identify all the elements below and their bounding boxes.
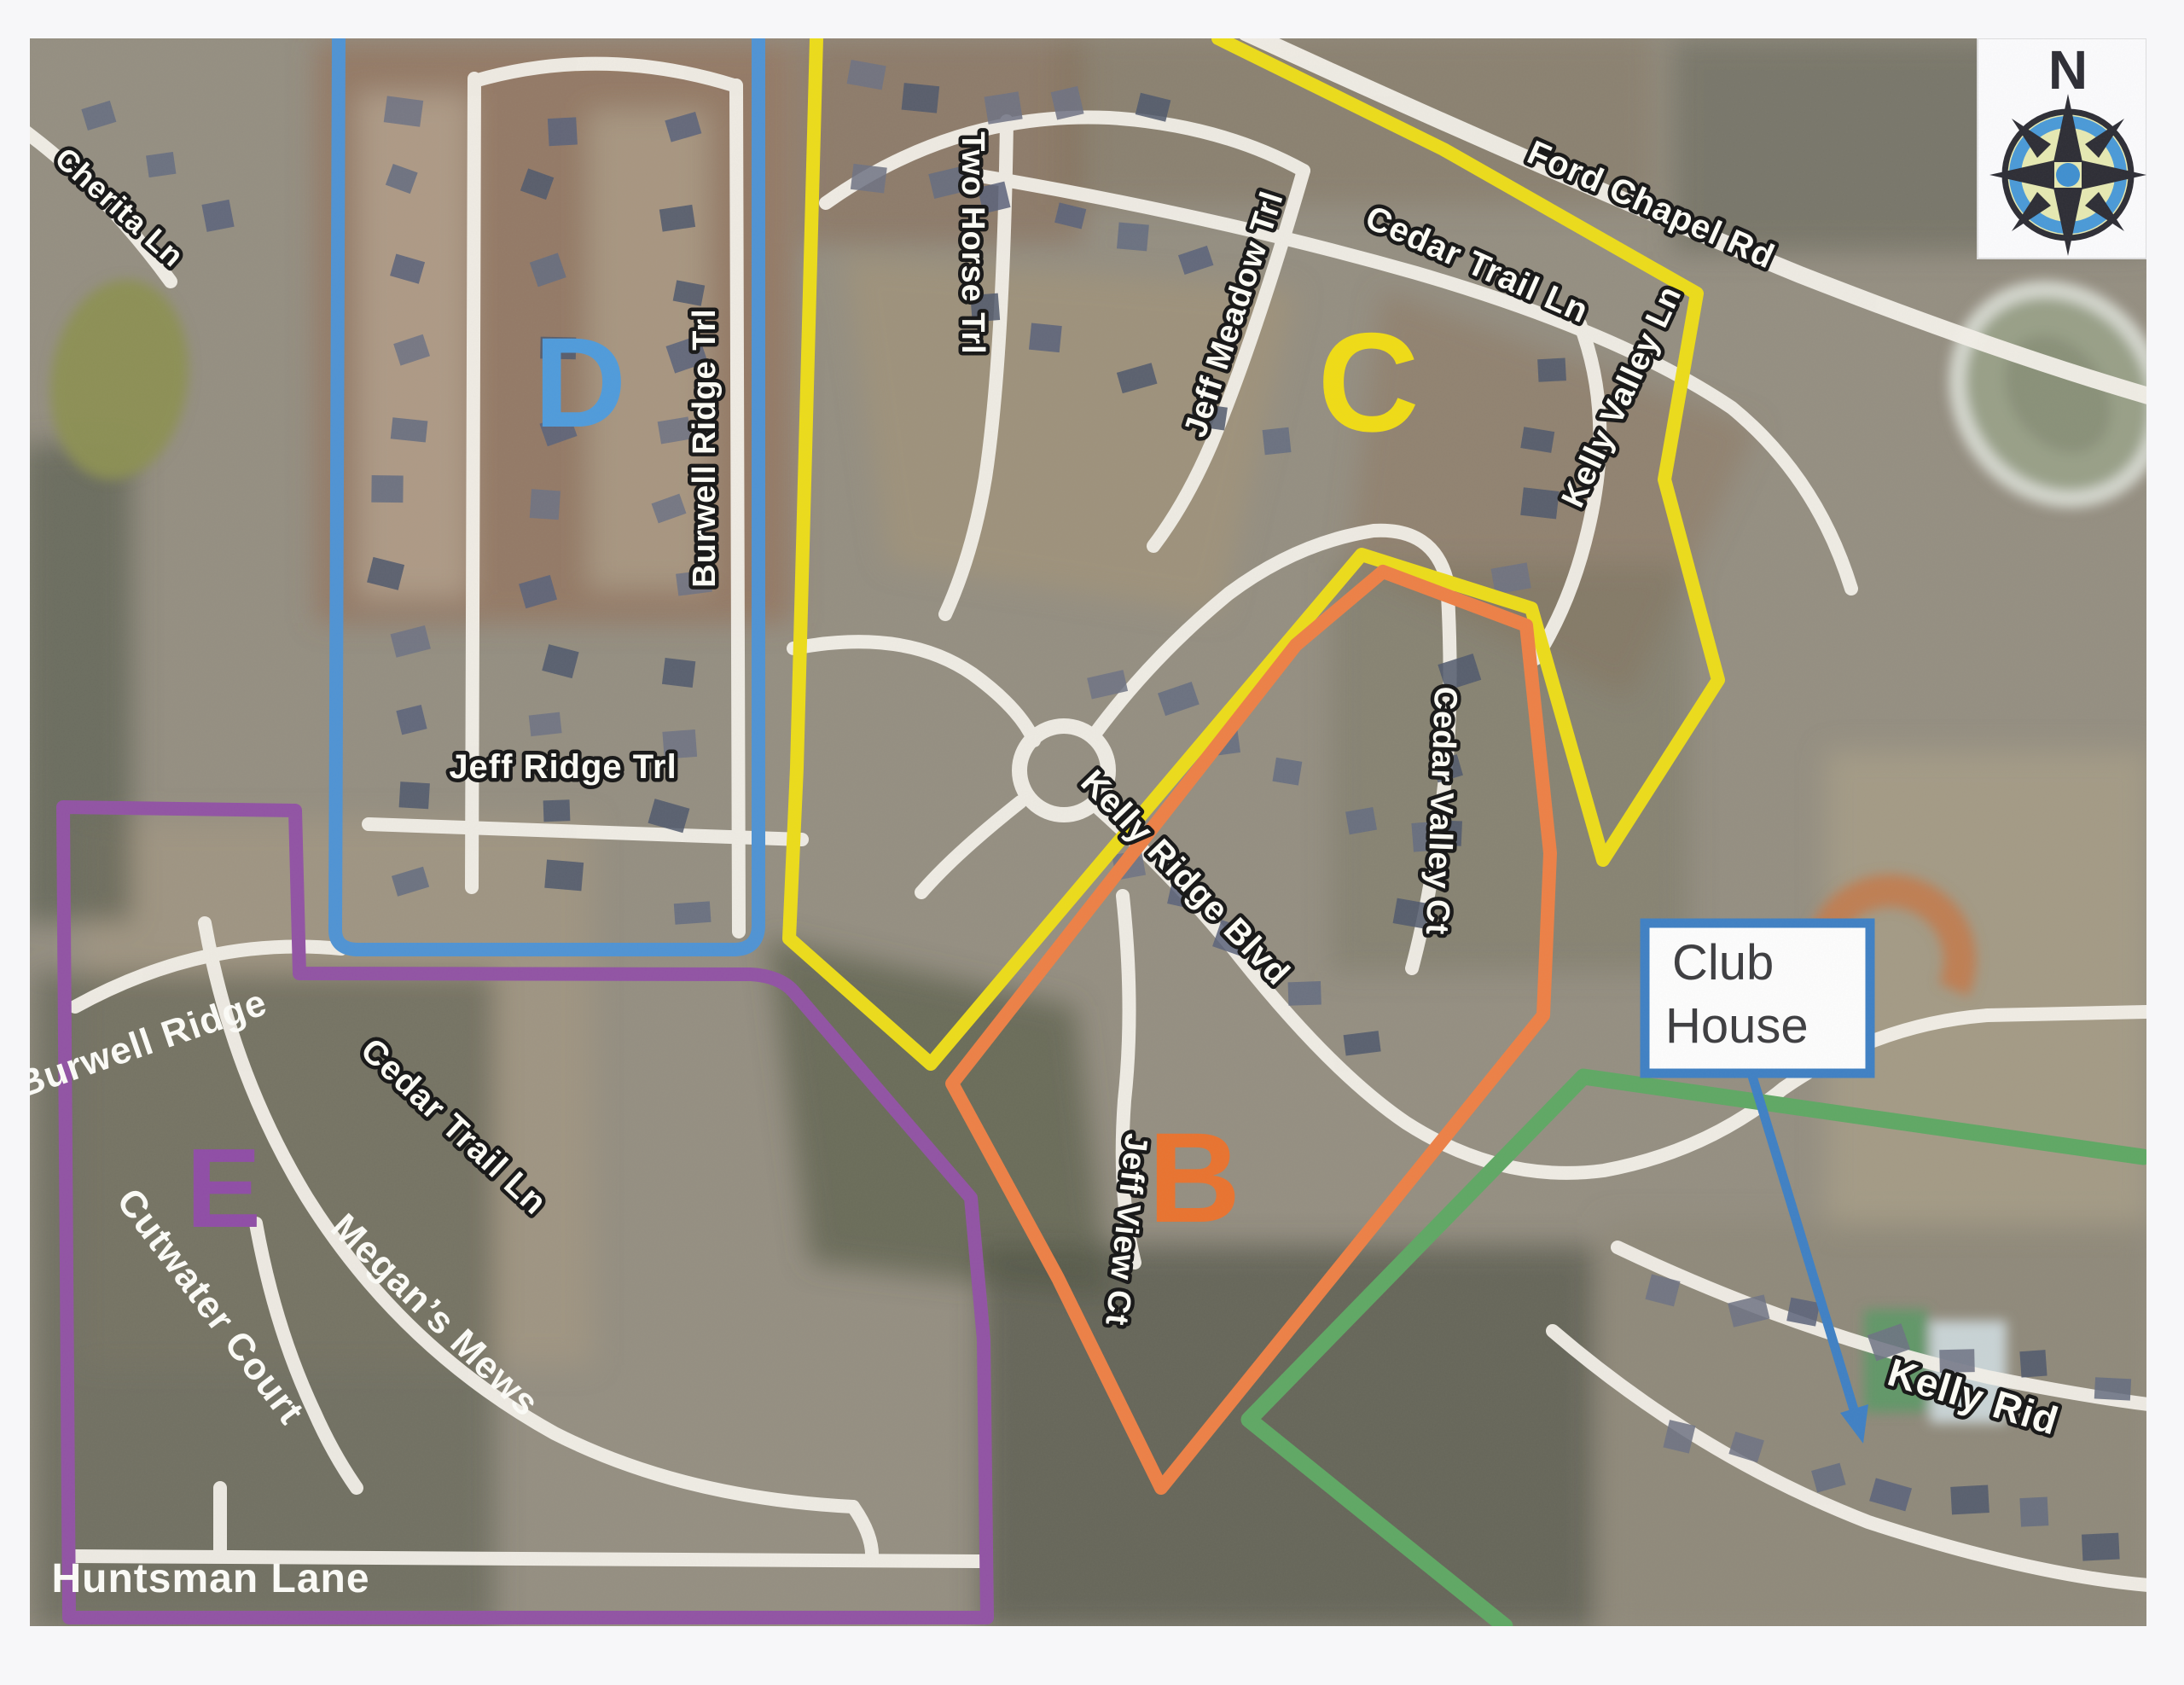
aerial-map: Cherita Ln Burwell Ridge Trl Two Horse T… <box>30 38 2146 1626</box>
map-canvas: Cherita Ln Burwell Ridge Trl Two Horse T… <box>30 38 2146 1626</box>
photo-grain-overlay <box>30 38 2146 1626</box>
scanned-map-page: Cherita Ln Burwell Ridge Trl Two Horse T… <box>0 0 2184 1685</box>
